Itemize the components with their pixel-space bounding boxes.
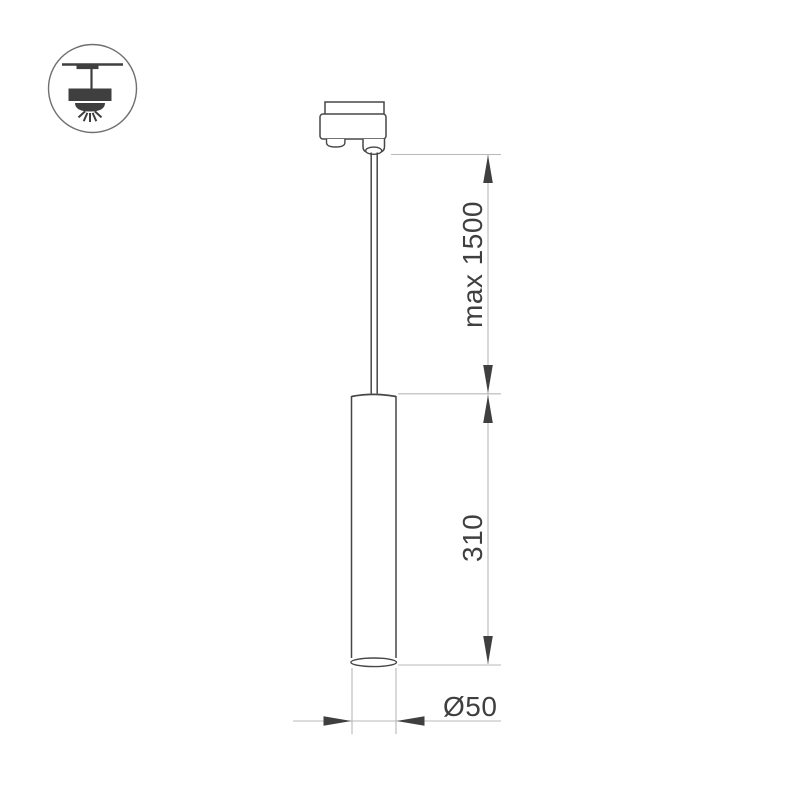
lamp-body-cylinder (351, 394, 397, 666)
track-adapter (320, 102, 386, 154)
pendant-light-dimension-drawing: max 1500 310 Ø50 (0, 0, 800, 800)
suspension-cable (371, 153, 377, 394)
technical-drawing-canvas: max 1500 310 Ø50 (0, 0, 800, 800)
cylinder-top-rim (352, 394, 397, 396)
pendant-lamp-badge (49, 45, 137, 133)
arrowhead-down (483, 365, 493, 393)
icon-lamp-body (69, 89, 112, 102)
dimension-label-diameter: Ø50 (443, 691, 497, 722)
arrowhead-left (397, 716, 425, 726)
dimension-diameter: Ø50 (293, 668, 501, 734)
arrowhead-up (483, 155, 493, 183)
adapter-body (320, 114, 386, 139)
cable-grommet (366, 147, 382, 154)
arrowhead-up (483, 395, 493, 423)
icon-mount-plate (77, 65, 99, 70)
dimension-label-suspension: max 1500 (457, 201, 488, 328)
arrowhead-right (324, 716, 352, 726)
adapter-left-knob (327, 139, 345, 147)
cylinder-bottom-cap (351, 658, 397, 667)
track-connector-top (325, 102, 384, 115)
dimension-body-height: 310 (398, 394, 501, 665)
arrowhead-down (483, 636, 493, 664)
dimension-label-body-height: 310 (457, 514, 488, 562)
dimension-suspension: max 1500 (391, 155, 501, 665)
